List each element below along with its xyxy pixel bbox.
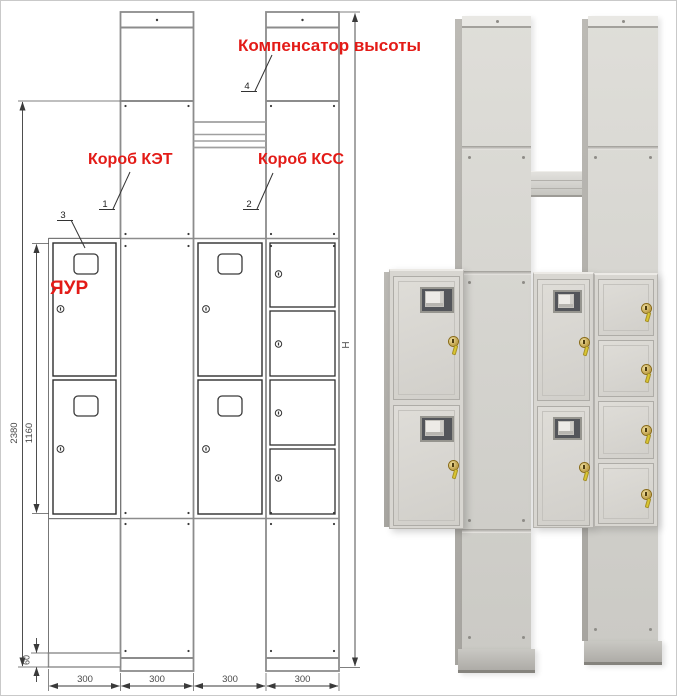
photo-locker-column	[594, 273, 658, 527]
meter-device	[558, 421, 574, 435]
lock-icon	[580, 463, 590, 483]
lock-icon	[580, 338, 590, 358]
door-window	[74, 396, 98, 416]
screw-icon	[522, 156, 525, 159]
meter-device	[425, 420, 444, 436]
photo-left-duct-joint	[462, 271, 531, 275]
duct-kss	[266, 12, 339, 671]
screenshot-root: 2380 1160 60 Н	[0, 0, 677, 696]
photo-bridge-duct	[531, 171, 588, 197]
photo-left-cabinet	[389, 269, 464, 529]
dim-300-label: 300	[222, 674, 238, 685]
product-photo	[361, 1, 677, 696]
lock-icon	[57, 306, 64, 313]
callout-4-number: 4	[244, 81, 249, 92]
callout-4: 4	[241, 55, 272, 92]
screw-icon	[649, 156, 652, 159]
photo-locker-door	[598, 463, 654, 524]
door-window	[420, 416, 454, 442]
photo-middle-cabinet	[533, 272, 594, 528]
callout-3: 3	[57, 210, 85, 248]
dimension-1160: 1160	[24, 244, 49, 514]
callout-3-number: 3	[60, 210, 65, 221]
lock-icon	[275, 410, 281, 416]
cabinet-middle	[198, 243, 262, 514]
door-window	[553, 417, 582, 440]
callout-1-number: 1	[102, 199, 107, 210]
callout-2-number: 2	[246, 199, 251, 210]
lock-icon	[642, 490, 652, 510]
dim-H-label: Н	[341, 341, 352, 348]
dim-2380-label: 2380	[9, 422, 20, 443]
photo-cabinet-door	[393, 276, 460, 400]
screw-icon	[522, 519, 525, 522]
screw-icon	[594, 156, 597, 159]
dim-300-label: 300	[77, 674, 93, 685]
dimension-60: 60	[22, 638, 49, 682]
label-korob-ket: Короб КЭТ	[88, 151, 173, 168]
screw-icon	[522, 281, 525, 284]
duct-ket	[121, 12, 194, 671]
screw-icon	[649, 628, 652, 631]
screw-icon	[496, 20, 499, 23]
photo-locker-door	[598, 401, 654, 459]
dim-300-label: 300	[149, 674, 165, 685]
screw-icon	[468, 636, 471, 639]
screw-icon	[622, 20, 625, 23]
lock-icon	[203, 306, 210, 313]
cabinet-yaur	[49, 239, 121, 654]
photo-right-duct-cap	[588, 16, 658, 28]
lock-icon	[642, 426, 652, 446]
photo-left-duct	[462, 16, 531, 649]
photo-right-duct-joint	[588, 146, 658, 150]
dim-300-label: 300	[295, 674, 311, 685]
lock-icon	[275, 341, 281, 347]
door-window	[218, 396, 242, 416]
door-window	[420, 287, 454, 313]
photo-right-duct-base	[584, 641, 662, 665]
meter-device	[558, 294, 574, 308]
dimension-300-row: 300 300 300 300	[49, 669, 340, 691]
photo-left-duct-joint	[462, 529, 531, 533]
screw-icon	[468, 156, 471, 159]
screw-icon	[522, 636, 525, 639]
photo-left-duct-joint	[462, 146, 531, 150]
screw-icon	[468, 281, 471, 284]
dimension-2380: 2380	[9, 101, 121, 667]
screw-icon	[468, 519, 471, 522]
door-window	[553, 290, 582, 313]
dimension-H: Н	[340, 12, 360, 668]
photo-cabinet-door	[393, 405, 460, 526]
cabinet-band	[49, 239, 340, 519]
lock-icon	[275, 271, 281, 277]
photo-cabinet-door	[537, 406, 590, 526]
lock-icon	[57, 446, 64, 453]
label-korob-kss: Короб КСС	[258, 151, 345, 168]
callout-2: 2	[243, 173, 273, 210]
screw-dots	[124, 19, 335, 652]
label-yaur: ЯУР	[50, 278, 88, 299]
lock-icon	[449, 461, 459, 481]
lock-icon	[275, 475, 281, 481]
dim-60-label: 60	[22, 655, 32, 665]
lock-icon	[203, 446, 210, 453]
screw-icon	[594, 628, 597, 631]
locker-doors-column	[270, 243, 335, 514]
photo-left-duct-cap	[462, 16, 531, 28]
meter-device	[425, 291, 444, 307]
lock-icon	[642, 304, 652, 324]
base-plinth	[49, 653, 121, 667]
photo-cabinet-door	[537, 279, 590, 401]
photo-locker-door	[598, 340, 654, 397]
dim-1160-label: 1160	[24, 423, 35, 443]
photo-left-duct-base	[458, 649, 535, 673]
lock-icon	[449, 337, 459, 357]
callout-1: 1	[99, 172, 130, 210]
bridge-duct	[194, 122, 267, 148]
door-window	[74, 254, 98, 274]
door-window	[218, 254, 242, 274]
photo-locker-door	[598, 279, 654, 336]
lock-icon	[642, 365, 652, 385]
